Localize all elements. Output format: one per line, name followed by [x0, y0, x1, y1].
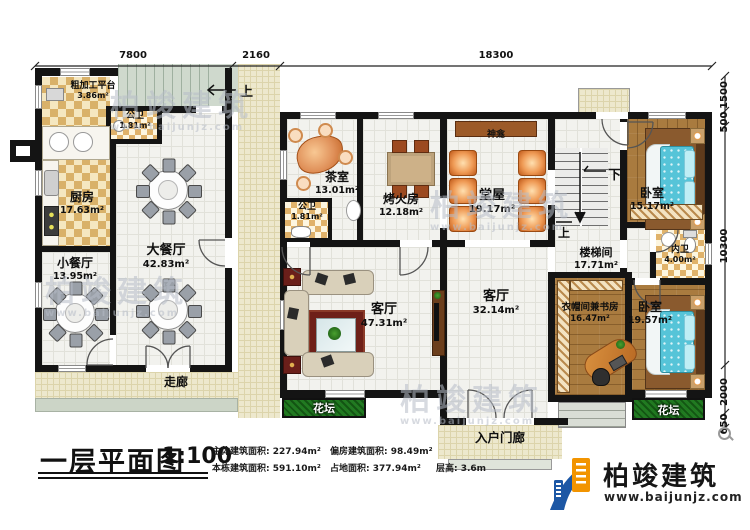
- stat-side-area: 偏房建筑面积: 98.49m²: [330, 444, 433, 457]
- stat-footprint: 占地面积: 377.94m²: [330, 461, 421, 474]
- title-underline: [38, 477, 208, 479]
- room-label-corridor: 走廊: [150, 375, 202, 390]
- stat-total-area: 本栋建筑面积: 591.10m²: [212, 461, 321, 474]
- room-label-hall: 堂屋19.17m²: [462, 188, 522, 216]
- room-label-wc-main: 公卫1.81m²: [285, 203, 329, 222]
- room-label-rough-platform: 粗加工平台3.86m²: [58, 82, 128, 101]
- dim-right-10300: 10300: [719, 228, 731, 264]
- room-label-porch: 入户门廊: [438, 430, 562, 446]
- room-label-kitchen: 厨房17.63m²: [50, 190, 114, 216]
- room-label-bedroom-ne: 卧室15.17m²: [620, 186, 684, 212]
- company-logo-icon: [546, 452, 600, 510]
- room-label-fire-room: 烤火房12.18m²: [368, 192, 434, 218]
- room-label-living-second: 客厅32.14m²: [464, 289, 528, 317]
- company-logo-text: 柏竣建筑: [603, 456, 719, 493]
- dim-top-18300: 18300: [468, 50, 524, 61]
- dim-top-7800: 7800: [105, 50, 161, 61]
- dim-right-2000: 2000: [719, 374, 731, 410]
- stairs-up-label: 上: [240, 81, 253, 100]
- room-label-stair-room: 楼梯间17.71m²: [560, 246, 632, 271]
- stairs-up-label: 上: [558, 224, 570, 241]
- room-label-dining-small: 小餐厅13.95m²: [38, 256, 112, 282]
- company-website: www.baijunjz.com: [604, 490, 743, 504]
- room-label-wc-inner: 内卫4.00m²: [658, 246, 702, 265]
- dim-right-500: 500: [719, 104, 731, 140]
- title-underline: [38, 472, 208, 474]
- dim-top-2160: 2160: [228, 50, 284, 61]
- stat-main-area: 主体建筑面积: 227.94m²: [212, 444, 321, 457]
- stairs-down-label: 下: [608, 164, 621, 183]
- stat-floor-height: 层高: 3.6m: [436, 461, 486, 474]
- room-label-dining-large: 大餐厅42.83m²: [128, 243, 204, 271]
- room-label-tea-room: 茶室13.01m²: [308, 170, 366, 196]
- floor-plan: 神龛: [0, 0, 750, 530]
- room-label-flowerbed-right: 花坛: [632, 402, 705, 418]
- room-label-wc-left: 公卫1.81m²: [112, 112, 158, 131]
- room-label-bedroom-se: 卧室19.57m²: [618, 300, 682, 326]
- room-label-flowerbed-left: 花坛: [282, 400, 366, 416]
- room-label-living-main: 客厅47.31m²: [352, 302, 416, 330]
